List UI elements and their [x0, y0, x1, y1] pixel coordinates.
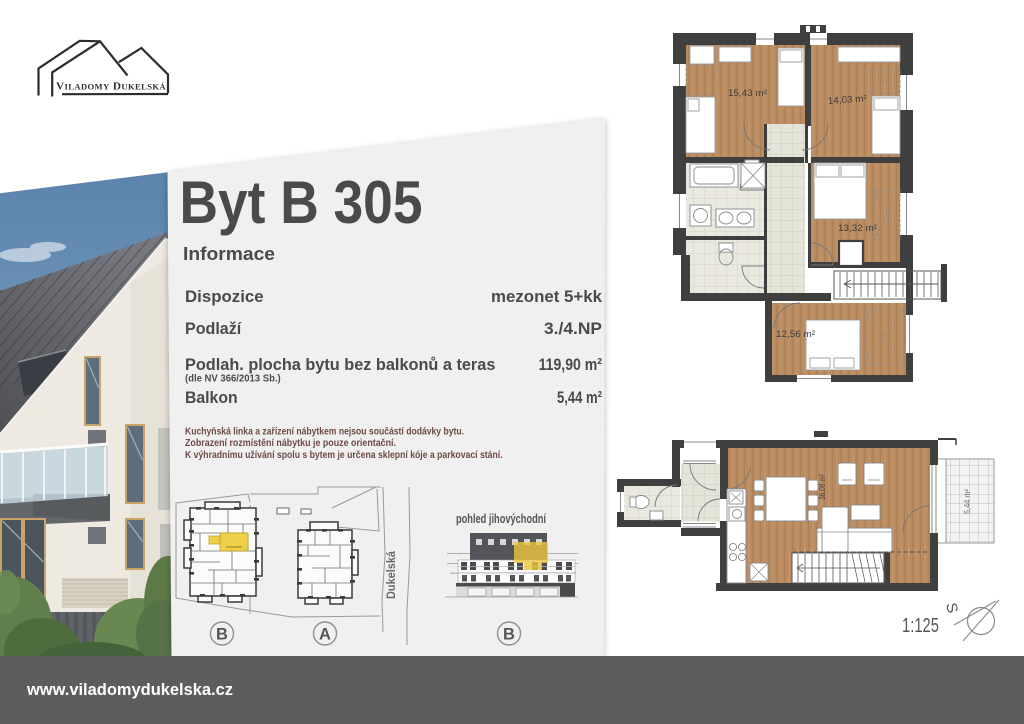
svg-text:12,56 m²: 12,56 m² — [776, 329, 815, 340]
svg-text:VILADOMY DUKELSKÁ: VILADOMY DUKELSKÁ — [56, 81, 166, 93]
svg-text:119,90 m²: 119,90 m² — [539, 355, 603, 374]
svg-text:Informace: Informace — [183, 243, 275, 264]
svg-text:13,32 m²: 13,32 m² — [838, 223, 877, 234]
svg-text:Kuchyňská linka a zařízení náb: Kuchyňská linka a zařízení nábytkem nejs… — [185, 427, 464, 438]
svg-text:Podlaží: Podlaží — [185, 319, 242, 338]
svg-text:S: S — [942, 601, 961, 614]
svg-text:15,43 m²: 15,43 m² — [728, 88, 767, 99]
svg-text:B: B — [503, 626, 515, 644]
svg-text:Dispozice: Dispozice — [185, 287, 264, 306]
svg-text:Zobrazení rozmístění nábytku j: Zobrazení rozmístění nábytku je pouze or… — [185, 438, 396, 449]
svg-text:K výhradnímu užívání spolu s b: K výhradnímu užívání spolu s bytem je ur… — [185, 450, 503, 461]
svg-text:mezonet 5+kk: mezonet 5+kk — [491, 287, 603, 306]
svg-text:36,08 m²: 36,08 m² — [817, 474, 827, 500]
svg-text:pohled jihovýchodní: pohled jihovýchodní — [456, 511, 546, 526]
svg-text:5,44 m²: 5,44 m² — [963, 489, 972, 514]
svg-text:Balkon: Balkon — [185, 388, 238, 407]
svg-text:(dle NV 366/2013 Sb.): (dle NV 366/2013 Sb.) — [185, 373, 281, 385]
svg-text:3./4.NP: 3./4.NP — [544, 319, 602, 338]
svg-text:Dukelská: Dukelská — [386, 550, 398, 599]
svg-text:1:125: 1:125 — [902, 615, 939, 637]
svg-text:B: B — [216, 626, 228, 644]
svg-text:www.viladomydukelska.cz: www.viladomydukelska.cz — [26, 680, 233, 699]
svg-text:5,44 m²: 5,44 m² — [557, 388, 602, 407]
svg-text:Byt B 305: Byt B 305 — [180, 169, 423, 236]
svg-text:Podlah. plocha bytu bez balkon: Podlah. plocha bytu bez balkonů a teras — [185, 355, 495, 374]
svg-text:A: A — [319, 626, 331, 644]
